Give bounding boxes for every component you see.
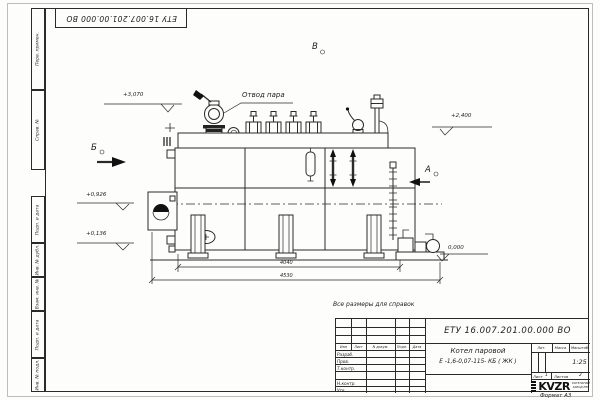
rev-col-podp: Подп. xyxy=(395,343,409,350)
drawing-sheet: Перв. примен. Справ. № Подп. и дата Инв.… xyxy=(0,0,600,400)
leader-line xyxy=(224,103,293,113)
grid-line xyxy=(395,319,396,393)
format-note: Формат А3 xyxy=(540,393,571,399)
steam-outlet-label: Отвод пара xyxy=(242,91,285,99)
sheets-label: Листов xyxy=(554,374,568,379)
elevation-0926: +0,926 xyxy=(86,192,106,198)
dimension-4040: 4040 xyxy=(280,260,293,266)
level-gauges xyxy=(306,148,357,187)
rev-col-ndoc: N докум. xyxy=(366,343,395,350)
product-type: Е -1,6-0,07-115- КБ ( ЖК ) xyxy=(425,357,531,367)
scale-value: 1:25 xyxy=(569,352,590,372)
mass-label: Масса xyxy=(552,343,569,352)
sign-row-prov: Пров. xyxy=(337,359,349,364)
gauge-pipe xyxy=(371,95,388,133)
grid-line xyxy=(409,319,410,393)
kvzr-emblem-icon xyxy=(531,381,536,392)
elevation-3070: +3,070 xyxy=(123,92,143,98)
view-arrows xyxy=(97,50,438,186)
grid-line xyxy=(538,352,539,372)
view-label-a: А xyxy=(425,165,431,175)
sheet-value: 1 xyxy=(545,373,548,378)
scale-label: Масштаб xyxy=(569,343,590,352)
grid-line xyxy=(366,319,367,393)
grid-line xyxy=(336,357,425,358)
safety-hatches xyxy=(246,112,321,134)
elevation-2400: +2,400 xyxy=(451,113,471,119)
sheet-label: Лист xyxy=(533,374,543,379)
burner xyxy=(148,192,177,230)
view-label-v: В xyxy=(312,42,318,52)
dimension-4530: 4530 xyxy=(280,273,293,279)
grid-line xyxy=(425,374,531,375)
reference-note: Все размеры для справок xyxy=(333,301,414,308)
drum-end-valve xyxy=(346,107,364,133)
product-name: Котел паровой xyxy=(425,345,531,357)
grid-line xyxy=(336,386,425,387)
sign-row-tkontr: Т.контр. xyxy=(337,366,355,371)
grid-line xyxy=(336,327,425,328)
grid-line xyxy=(551,372,552,379)
doc-number: ЕТУ 16.007.201.00.000 ВО xyxy=(425,319,590,343)
rev-col-list: Лист xyxy=(351,343,366,350)
sheets-value: 2 xyxy=(579,373,582,378)
flange-column xyxy=(389,162,397,240)
sign-row-nkontr: Н.контр. xyxy=(337,381,356,386)
company-logo: KVZR КОТЕЛЬНЫЙ ЗАВОД РЭП xyxy=(531,379,590,393)
company-line2: ЗАВОД РЭП xyxy=(572,386,590,390)
logo-text: KVZR xyxy=(538,380,569,393)
grid-line xyxy=(545,352,546,372)
company-name: КОТЕЛЬНЫЙ ЗАВОД РЭП xyxy=(572,382,590,389)
elevation-0136: +0,136 xyxy=(86,231,106,237)
grid-line xyxy=(336,335,425,336)
lit-label: Лит. xyxy=(531,343,552,352)
grid-line xyxy=(336,371,425,372)
sign-row-utv: Утв. xyxy=(337,388,346,393)
view-label-b: Б xyxy=(91,143,97,153)
rev-col-izm: Изм xyxy=(336,343,351,350)
rev-col-data: Дата xyxy=(409,343,425,350)
steam-outlet-valve xyxy=(193,90,225,133)
title-block: Изм Лист N докум. Подп. Дата Разраб. Про… xyxy=(335,318,589,392)
feed-pump xyxy=(396,230,444,260)
drum-dome xyxy=(226,128,241,134)
elevation-0000: 0,000 xyxy=(448,245,464,251)
sign-row-razrab: Разраб. xyxy=(337,352,353,357)
support-legs xyxy=(188,215,384,258)
